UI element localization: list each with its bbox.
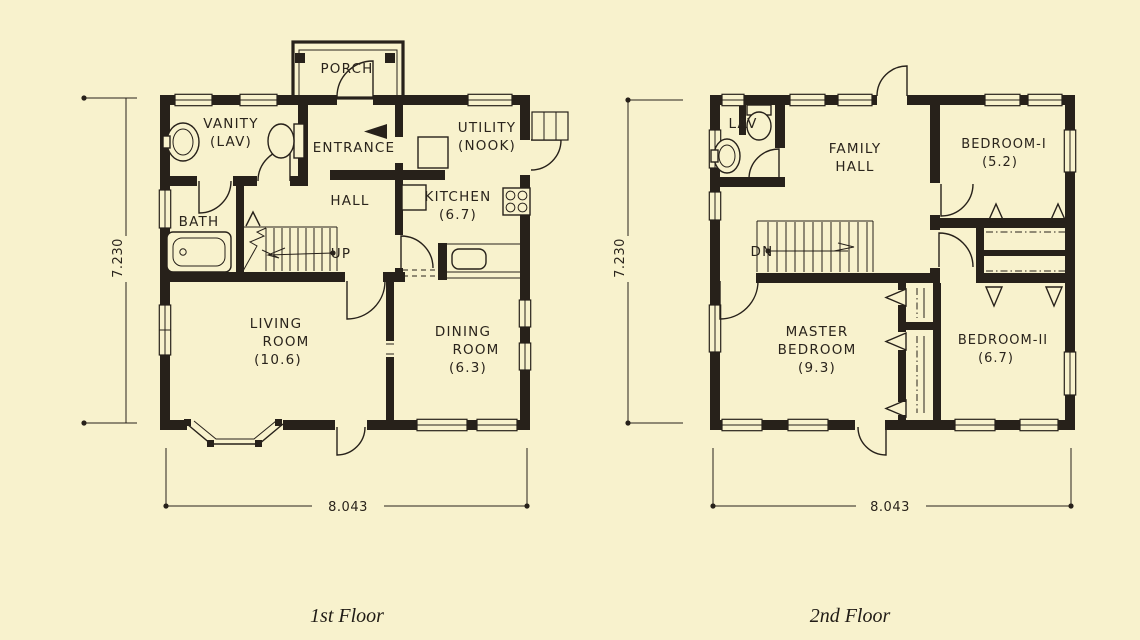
label-dining-area: (6.3) — [449, 360, 487, 376]
label-family-2: HALL — [835, 159, 874, 175]
fridge-fixture — [402, 185, 426, 210]
floor1-labels: PORCH VANITY (LAV) ENTRANCE UTILITY (NOO… — [179, 61, 517, 376]
stairs-floor1 — [243, 227, 337, 271]
label-dining-1: DINING — [435, 324, 491, 340]
label-stairs-up: UP — [331, 246, 351, 262]
bay-window — [184, 419, 283, 447]
lav-faucet — [711, 150, 718, 162]
caption-floor1: 1st Floor — [310, 605, 384, 627]
entry-step-marker — [364, 124, 387, 139]
label-bath: BATH — [179, 214, 220, 230]
dim-height-floor2: 7.230 — [613, 238, 628, 278]
label-living-2: ROOM — [262, 334, 309, 350]
label-vanity-sub: (LAV) — [210, 134, 252, 150]
floor1-plan: 7.230 8.043 PORCH VANITY (LAV) ENTRANCE … — [81, 42, 568, 515]
floor-plan-drawing: 7.230 8.043 PORCH VANITY (LAV) ENTRANCE … — [0, 0, 1140, 640]
toilet-fixture-floor1 — [268, 124, 304, 158]
label-kitchen: KITCHEN — [425, 189, 492, 205]
bath-door-marker — [246, 212, 260, 226]
label-living-1: LIVING — [250, 316, 302, 332]
label-entrance: ENTRANCE — [313, 140, 396, 156]
label-vanity: VANITY — [203, 116, 258, 132]
caption-floor2: 2nd Floor — [810, 605, 891, 627]
label-master-area: (9.3) — [798, 360, 836, 376]
label-master-1: MASTER — [786, 324, 849, 340]
label-living-area: (10.6) — [254, 352, 302, 368]
utility-appliance — [418, 137, 448, 168]
pass-through-marker — [386, 344, 394, 354]
label-porch: PORCH — [320, 61, 373, 77]
entry-steps — [532, 112, 568, 140]
floor2-plan: 7.230 8.043 LAV FAMILY HALL BEDROOM-I (5… — [613, 66, 1076, 515]
label-bedroom2: BEDROOM-II — [958, 333, 1048, 348]
label-kitchen-area: (6.7) — [439, 207, 477, 223]
label-bedroom1-area: (5.2) — [982, 155, 1018, 170]
label-bedroom2-area: (6.7) — [978, 351, 1014, 366]
dim-width-floor2: 8.043 — [870, 500, 910, 515]
kitchen-counter — [447, 244, 520, 278]
label-lav: LAV — [728, 116, 757, 132]
stove-fixture — [503, 188, 530, 215]
kitchen-sink-fixture — [452, 249, 486, 269]
floor-plan-page: 7.230 8.043 PORCH VANITY (LAV) ENTRANCE … — [0, 0, 1140, 640]
stairs-floor2 — [757, 221, 873, 272]
floor2-labels: LAV FAMILY HALL BEDROOM-I (5.2) DN MASTE… — [728, 116, 1048, 376]
dim-height-floor1: 7.230 — [111, 238, 126, 278]
vanity-faucet — [163, 136, 170, 148]
label-hall: HALL — [330, 193, 369, 209]
label-utility: UTILITY — [458, 120, 517, 136]
label-bedroom1: BEDROOM-I — [961, 137, 1046, 152]
dim-width-floor1: 8.043 — [328, 500, 368, 515]
label-stairs-dn: DN — [751, 244, 774, 260]
bathtub-fixture — [167, 232, 231, 272]
label-dining-2: ROOM — [452, 342, 499, 358]
label-utility-sub: (NOOK) — [458, 138, 516, 154]
label-master-2: BEDROOM — [778, 342, 857, 358]
label-family-1: FAMILY — [829, 141, 882, 157]
